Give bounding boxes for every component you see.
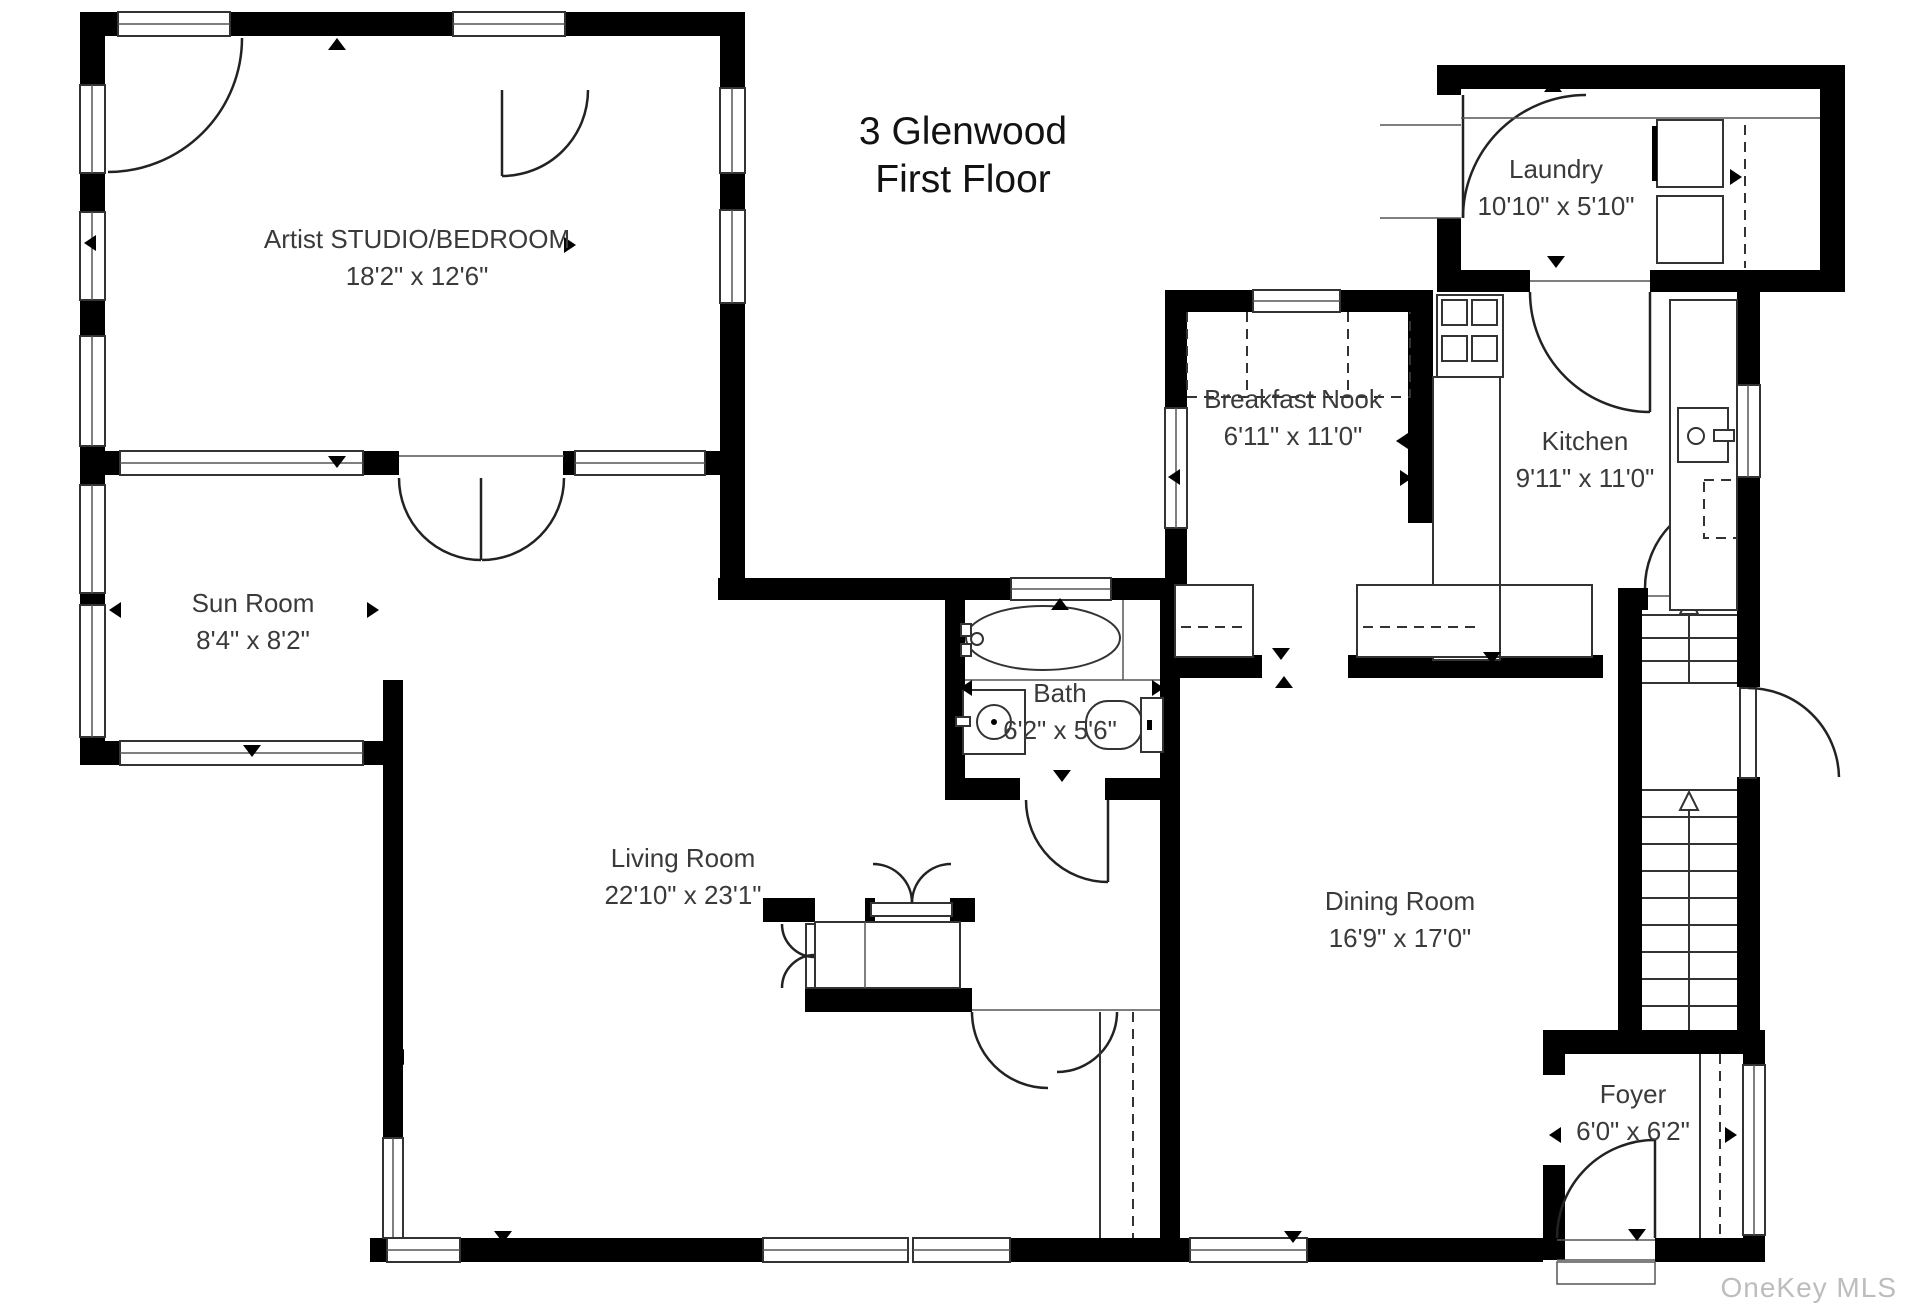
room-label-laundry: Laundry 10'10" x 5'10" bbox=[1477, 151, 1634, 225]
plan-title: 3 Glenwood First Floor bbox=[859, 108, 1067, 204]
room-name: Dining Room bbox=[1325, 883, 1475, 920]
room-name: Artist STUDIO/BEDROOM bbox=[264, 221, 570, 258]
room-dims: 6'11" x 11'0" bbox=[1204, 418, 1382, 455]
room-dims: 9'11" x 11'0" bbox=[1516, 460, 1655, 497]
floor-plan-page: 3 Glenwood First Floor Artist STUDIO/BED… bbox=[0, 0, 1907, 1308]
room-name: Sun Room bbox=[192, 585, 315, 622]
room-label-artist-studio: Artist STUDIO/BEDROOM 18'2" x 12'6" bbox=[264, 221, 570, 295]
room-label-foyer: Foyer 6'0" x 6'2" bbox=[1576, 1076, 1690, 1150]
room-label-living-room: Living Room 22'10" x 23'1" bbox=[604, 840, 761, 914]
washer-icon bbox=[1657, 120, 1723, 187]
watermark: OneKey MLS bbox=[1720, 1272, 1897, 1304]
room-dims: 16'9" x 17'0" bbox=[1325, 920, 1475, 957]
room-label-breakfast-nook: Breakfast Nook 6'11" x 11'0" bbox=[1204, 381, 1382, 455]
room-dims: 18'2" x 12'6" bbox=[264, 258, 570, 295]
plan-title-line2: First Floor bbox=[859, 156, 1067, 204]
room-name: Laundry bbox=[1477, 151, 1634, 188]
kitchen-sink-icon bbox=[1678, 408, 1734, 462]
staircase bbox=[1642, 596, 1737, 1030]
room-label-sun-room: Sun Room 8'4" x 8'2" bbox=[192, 585, 315, 659]
room-name: Breakfast Nook bbox=[1204, 381, 1382, 418]
stove-icon bbox=[1437, 295, 1503, 377]
room-name: Foyer bbox=[1576, 1076, 1690, 1113]
room-dims: 6'0" x 6'2" bbox=[1576, 1113, 1690, 1150]
room-name: Kitchen bbox=[1516, 423, 1655, 460]
bathtub-icon bbox=[966, 606, 1120, 670]
room-name: Living Room bbox=[604, 840, 761, 877]
room-name: Bath bbox=[1003, 675, 1117, 712]
room-dims: 10'10" x 5'10" bbox=[1477, 188, 1634, 225]
room-dims: 22'10" x 23'1" bbox=[604, 877, 761, 914]
room-dims: 6'2" x 5'6" bbox=[1003, 712, 1117, 749]
room-dims: 8'4" x 8'2" bbox=[192, 622, 315, 659]
room-label-dining-room: Dining Room 16'9" x 17'0" bbox=[1325, 883, 1475, 957]
dryer-icon bbox=[1657, 196, 1723, 263]
plan-title-line1: 3 Glenwood bbox=[859, 108, 1067, 156]
room-label-bath: Bath 6'2" x 5'6" bbox=[1003, 675, 1117, 749]
room-label-kitchen: Kitchen 9'11" x 11'0" bbox=[1516, 423, 1655, 497]
